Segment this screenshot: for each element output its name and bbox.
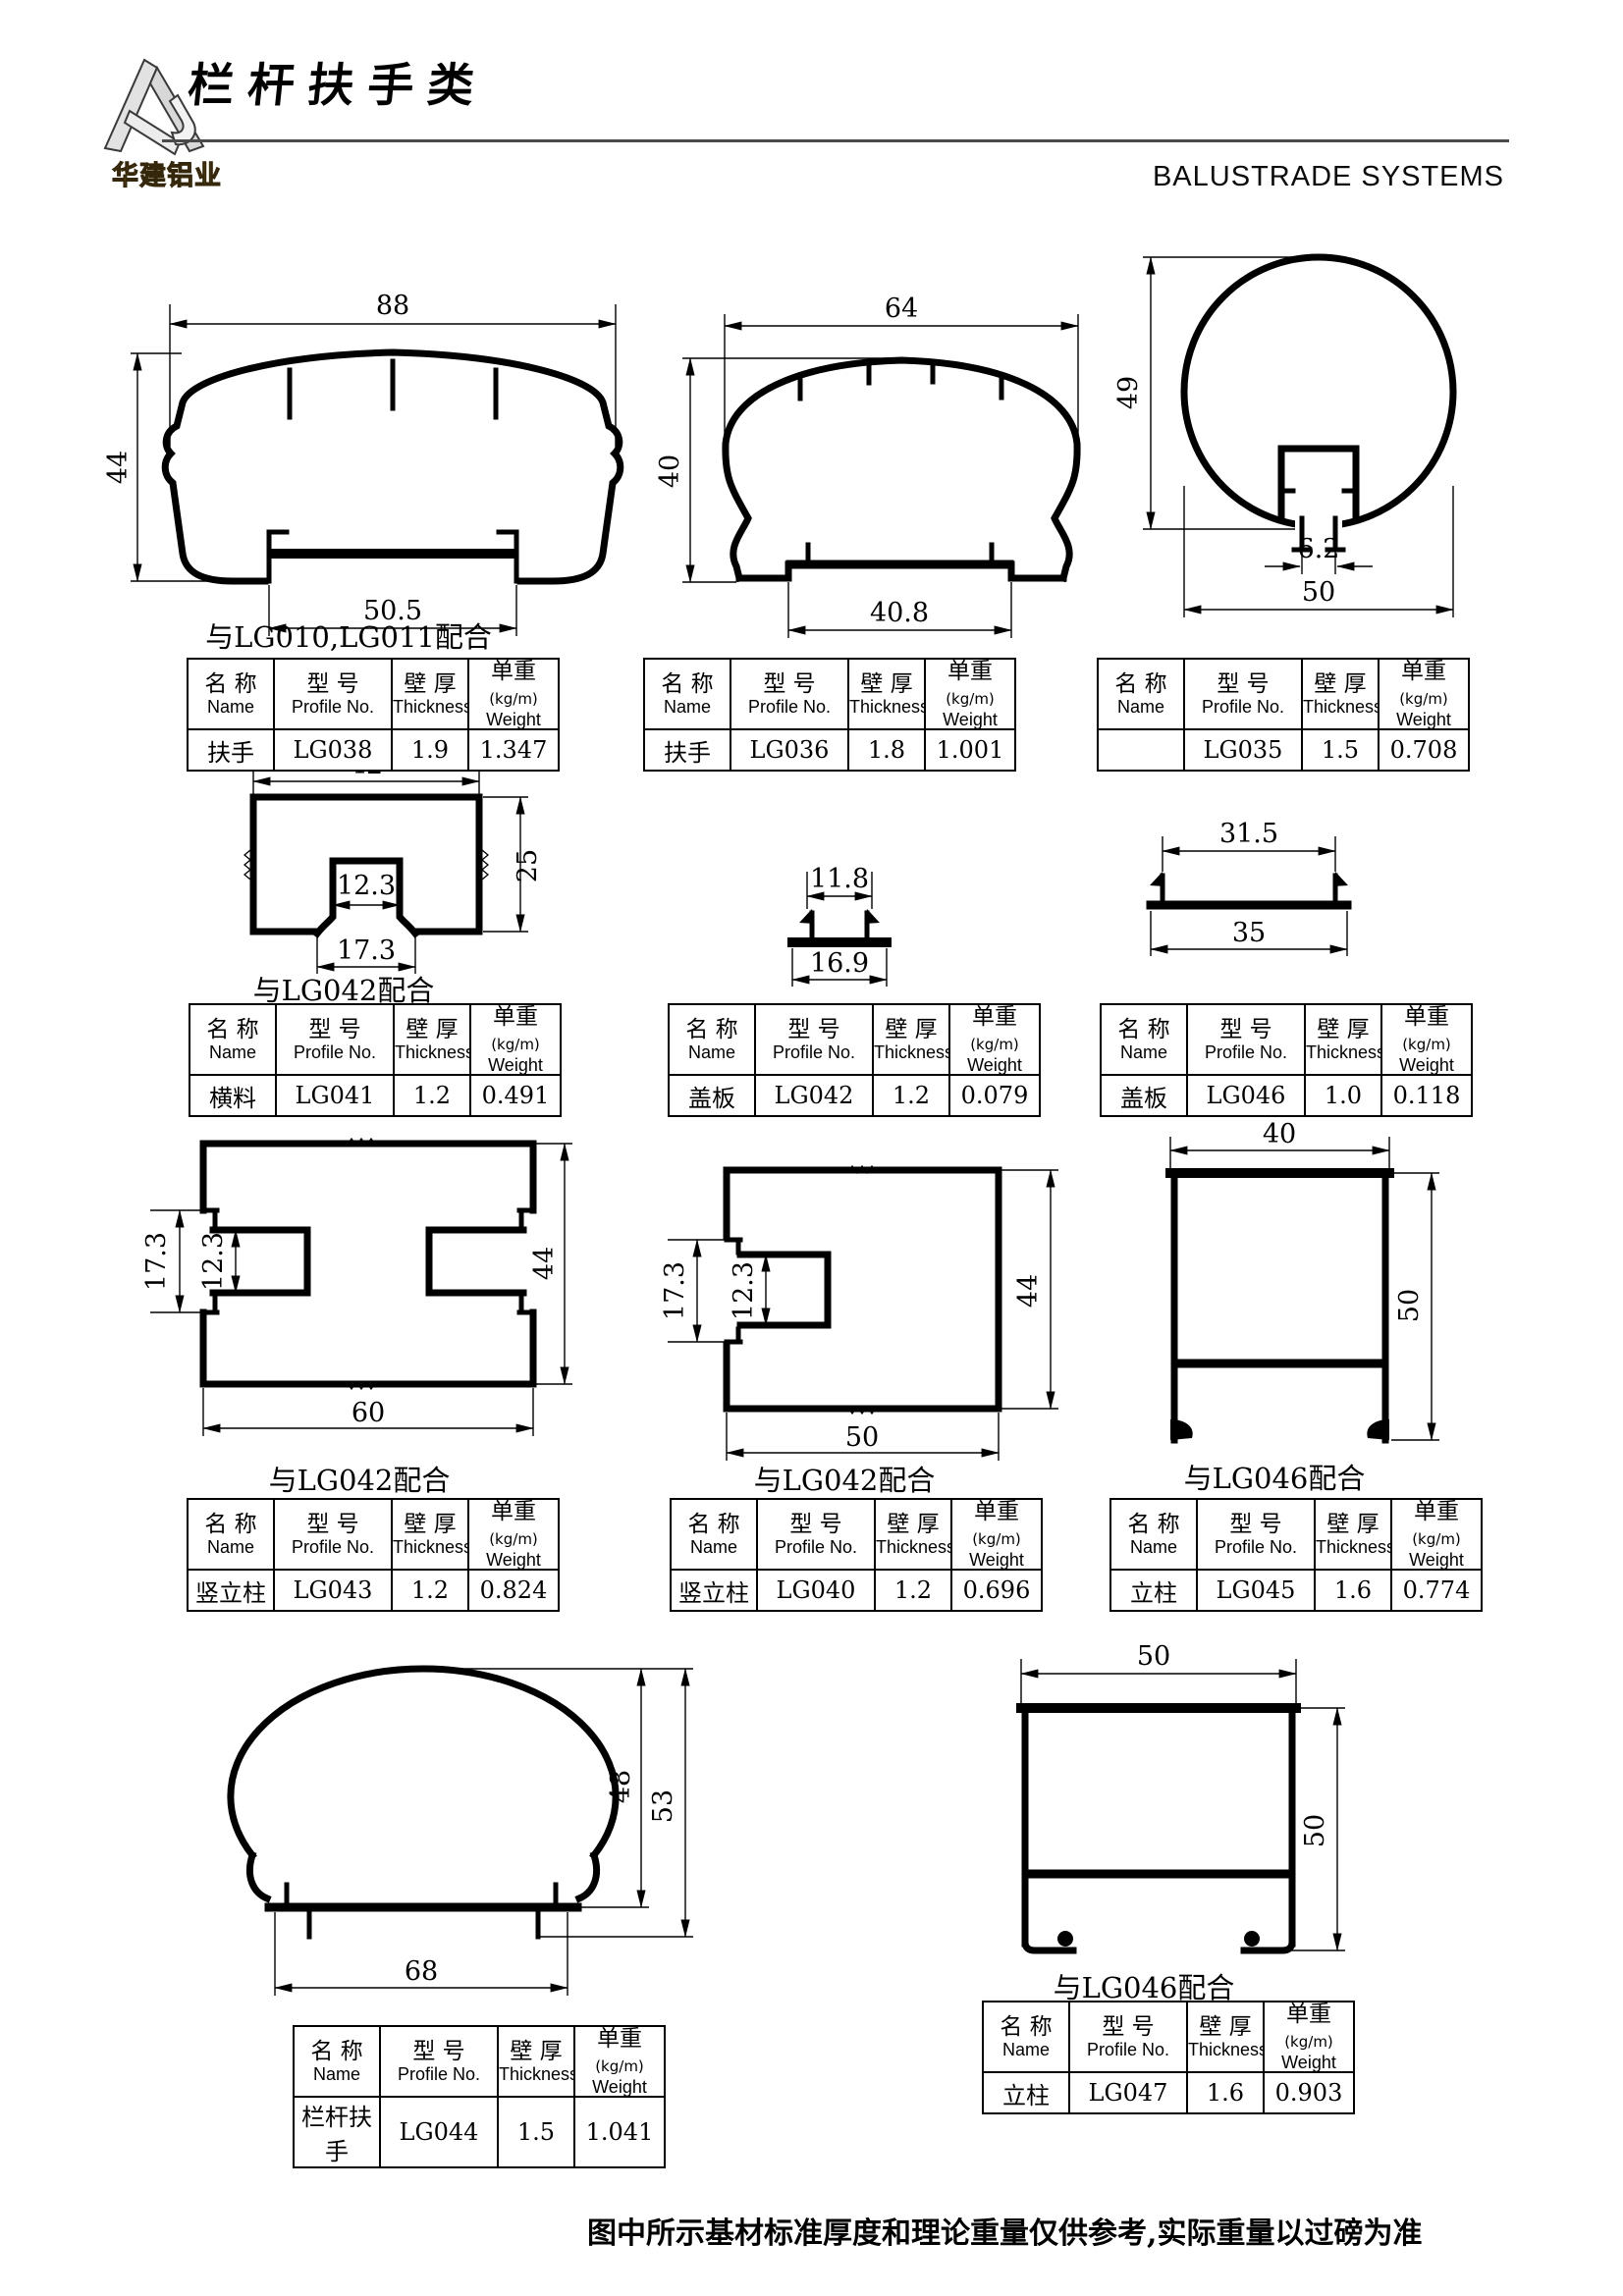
svg-text:53: 53 <box>648 1789 678 1823</box>
profile-drawing-lg046: 31.5 35 <box>1100 825 1473 977</box>
profile-drawing-lg047: 50 50 <box>972 1649 1394 1968</box>
spec-table-lg046: 名 称Name 型 号Profile No. 壁 厚Thickness 单重(k… <box>1100 1003 1473 1117</box>
svg-text:49: 49 <box>1113 376 1144 409</box>
th-name: 名 称Name <box>983 2002 1069 2072</box>
th-name: 名 称Name <box>644 659 730 729</box>
profile-drawing-lg040: 17.3 12.3 44 50 <box>638 1134 1129 1472</box>
cell-thickness: 1.5 <box>498 2097 574 2167</box>
th-weight: 单重(kg/m)Weight <box>470 1004 561 1075</box>
th-profile: 型 号Profile No. <box>1184 659 1302 729</box>
cell-thickness: 1.6 <box>1315 1570 1391 1611</box>
cell-weight: 0.824 <box>468 1570 559 1611</box>
cell-name: 扶手 <box>644 729 730 771</box>
caption-lg038: 与LG010,LG011配合 <box>201 614 496 656</box>
svg-text:44: 44 <box>529 1247 560 1280</box>
cell-weight: 0.774 <box>1391 1570 1482 1611</box>
th-thickness: 壁 厚Thickness <box>498 2026 574 2097</box>
dimension-bottom: 35 <box>1151 911 1347 956</box>
cell-profile-no: LG043 <box>274 1570 392 1611</box>
dimension-width: 50 <box>1021 1641 1296 1703</box>
dimension-inner: 12.3 <box>198 1230 236 1293</box>
cell-name: 竖立柱 <box>671 1570 757 1611</box>
caption-lg040: 与LG042配合 <box>746 1458 943 1499</box>
th-profile: 型 号Profile No. <box>755 1004 873 1075</box>
cell-thickness: 1.5 <box>1302 729 1379 771</box>
cell-thickness: 1.0 <box>1305 1075 1381 1116</box>
svg-text:16.9: 16.9 <box>810 948 869 979</box>
catalog-page: 华建铝业 栏杆扶手类 BALUSTRADE SYSTEMS 88 44 50. <box>0 0 1623 2296</box>
dimension-inner: 12.3 <box>333 871 400 905</box>
th-thickness: 壁 厚Thickness <box>848 659 925 729</box>
cell-name: 立柱 <box>1110 1570 1197 1611</box>
cell-profile-no: LG046 <box>1187 1075 1305 1116</box>
cell-weight: 0.708 <box>1379 729 1469 771</box>
th-thickness: 壁 厚Thickness <box>873 1004 949 1075</box>
cell-name: 横料 <box>189 1075 276 1116</box>
cell-profile-no: LG041 <box>276 1075 394 1116</box>
svg-text:11.8: 11.8 <box>810 864 869 894</box>
svg-text:31.5: 31.5 <box>1219 819 1278 849</box>
caption-lg043: 与LG042配合 <box>261 1458 458 1499</box>
th-name: 名 称Name <box>188 659 274 729</box>
th-profile: 型 号Profile No. <box>1187 1004 1305 1075</box>
cell-weight: 0.079 <box>949 1075 1040 1116</box>
th-weight: 单重(kg/m)Weight <box>1391 1499 1482 1570</box>
dimension-width: 64 <box>725 294 1078 454</box>
dimension-width: 68 <box>275 1912 568 1996</box>
th-profile: 型 号Profile No. <box>730 659 848 729</box>
profile-outline <box>1021 1708 1296 1950</box>
cell-thickness: 1.2 <box>394 1075 470 1116</box>
page-title: 栏杆扶手类 <box>185 47 491 115</box>
page-subtitle: BALUSTRADE SYSTEMS <box>1109 161 1504 193</box>
profile-outline <box>231 1669 616 1937</box>
svg-text:40.8: 40.8 <box>870 598 929 628</box>
svg-text:68: 68 <box>405 1956 438 1987</box>
profile-drawing-lg042: 11.8 16.9 <box>736 854 962 1001</box>
svg-text:40: 40 <box>1263 1119 1296 1149</box>
th-name: 名 称Name <box>1098 659 1184 729</box>
cell-weight: 0.118 <box>1381 1075 1472 1116</box>
cell-weight: 0.491 <box>470 1075 561 1116</box>
svg-text:12.3: 12.3 <box>198 1232 229 1291</box>
th-thickness: 壁 厚Thickness <box>392 659 468 729</box>
cell-profile-no: LG044 <box>380 2097 498 2167</box>
svg-text:50: 50 <box>1300 1814 1330 1847</box>
th-profile: 型 号Profile No. <box>380 2026 498 2097</box>
profile-outline <box>1170 1173 1389 1440</box>
svg-text:50: 50 <box>1394 1289 1425 1322</box>
th-thickness: 壁 厚Thickness <box>1302 659 1379 729</box>
spec-table-lg040: 名 称Name 型 号Profile No. 壁 厚Thickness 单重(k… <box>670 1498 1043 1612</box>
cell-thickness: 1.6 <box>1187 2072 1264 2113</box>
svg-text:60: 60 <box>352 1398 385 1428</box>
cell-profile-no: LG042 <box>755 1075 873 1116</box>
spec-table-lg036: 名 称Name 型 号Profile No. 壁 厚Thickness 单重(k… <box>643 658 1016 772</box>
profile-outline <box>727 1166 999 1414</box>
dimension-height: 44 <box>1001 1170 1058 1409</box>
caption-lg045: 与LG046配合 <box>1176 1456 1373 1497</box>
dimension-bottom: 40.8 <box>788 582 1011 638</box>
cell-name: 立柱 <box>983 2072 1069 2113</box>
th-weight: 单重(kg/m)Weight <box>574 2026 665 2097</box>
logo-text: 华建铝业 <box>112 160 222 191</box>
dimension-height: 40 <box>655 358 893 582</box>
svg-text:44: 44 <box>103 451 134 484</box>
profile-drawing-lg036: 64 40 40.8 <box>638 285 1100 653</box>
cell-profile-no: LG040 <box>757 1570 875 1611</box>
cell-profile-no: LG036 <box>730 729 848 771</box>
cell-profile-no: LG038 <box>274 729 392 771</box>
profile-drawing-lg041: 42 12.3 17.3 25 <box>167 756 579 987</box>
cell-name <box>1098 729 1184 771</box>
dimension-height: 50 <box>1391 1173 1439 1440</box>
th-weight: 单重(kg/m)Weight <box>951 1499 1042 1570</box>
th-weight-en: Weight <box>469 711 558 729</box>
cell-thickness: 1.9 <box>392 729 468 771</box>
th-name: 名 称Name <box>1110 1499 1197 1570</box>
th-thickness: 壁 厚Thickness <box>875 1499 951 1570</box>
profile-outline <box>1150 872 1348 905</box>
spec-table-lg044: 名 称Name 型 号Profile No. 壁 厚Thickness 单重(k… <box>293 2025 666 2168</box>
dimension-bottom: 16.9 <box>792 948 887 987</box>
svg-text:17.3: 17.3 <box>337 935 396 966</box>
dimension-top: 31.5 <box>1163 819 1335 872</box>
cell-profile-no: LG035 <box>1184 729 1302 771</box>
th-weight: 单重(kg/m)Weight <box>1379 659 1469 729</box>
svg-text:12.3: 12.3 <box>729 1261 759 1320</box>
dimension-slot: 6.2 <box>1265 526 1373 574</box>
dimension-inner: 12.3 <box>729 1255 766 1325</box>
cell-profile-no: LG045 <box>1197 1570 1315 1611</box>
cell-name: 盖板 <box>669 1075 755 1116</box>
profile-outline <box>244 797 488 934</box>
cell-thickness: 1.8 <box>848 729 925 771</box>
cell-name: 竖立柱 <box>188 1570 274 1611</box>
svg-text:44: 44 <box>1013 1274 1044 1308</box>
th-weight-cn: 单重(kg/m) <box>469 660 558 711</box>
cell-thickness: 1.2 <box>875 1570 951 1611</box>
cell-weight: 1.347 <box>468 729 559 771</box>
svg-text:88: 88 <box>376 291 409 321</box>
svg-text:17.3: 17.3 <box>141 1232 172 1291</box>
th-profile-cn: 型 号 <box>275 672 391 698</box>
spec-table-lg041: 名 称Name 型 号Profile No. 壁 厚Thickness 单重(k… <box>189 1003 562 1117</box>
cell-thickness: 1.2 <box>392 1570 468 1611</box>
cell-weight: 0.696 <box>951 1570 1042 1611</box>
th-weight: 单重(kg/m)Weight <box>949 1004 1040 1075</box>
th-profile: 型 号Profile No. <box>1197 1499 1315 1570</box>
dimension-outer: 17.3 <box>660 1240 725 1342</box>
th-name: 名 称Name <box>1101 1004 1187 1075</box>
spec-table-lg038: 名 称Name 型 号Profile No. 壁 厚Thickness 单重(k… <box>187 658 560 772</box>
cell-thickness: 1.2 <box>873 1075 949 1116</box>
dimension-width: 50 <box>727 1413 999 1461</box>
svg-text:12.3: 12.3 <box>337 871 396 901</box>
th-name: 名 称Name <box>669 1004 755 1075</box>
svg-text:17.3: 17.3 <box>660 1261 690 1320</box>
svg-text:25: 25 <box>513 849 543 882</box>
th-thickness: 壁 厚Thickness <box>394 1004 470 1075</box>
th-profile-en: Profile No. <box>275 698 391 717</box>
th-profile: 型 号Profile No. <box>274 659 392 729</box>
spec-table-lg035: 名 称Name 型 号Profile No. 壁 厚Thickness 单重(k… <box>1097 658 1470 772</box>
cell-name: 扶手 <box>188 729 274 771</box>
profile-drawing-lg038: 88 44 50.5 <box>93 236 692 658</box>
th-thickness: 壁 厚Thickness <box>1305 1004 1381 1075</box>
th-weight-unit: (kg/m) <box>489 690 538 708</box>
cell-name: 盖板 <box>1101 1075 1187 1116</box>
cell-weight: 1.041 <box>574 2097 665 2167</box>
th-name: 名 称Name <box>671 1499 757 1570</box>
cell-weight: 0.903 <box>1264 2072 1354 2113</box>
th-weight: 单重(kg/m)Weight <box>1264 2002 1354 2072</box>
svg-text:48: 48 <box>606 1770 636 1803</box>
spec-table-lg045: 名 称Name 型 号Profile No. 壁 厚Thickness 单重(k… <box>1109 1498 1483 1612</box>
profile-drawing-lg043: 17.3 12.3 44 60 <box>118 1134 609 1448</box>
profile-outline <box>203 1139 533 1389</box>
svg-text:64: 64 <box>885 294 918 324</box>
th-name: 名 称Name <box>294 2026 380 2097</box>
th-thickness: 壁 厚Thickness <box>1187 2002 1264 2072</box>
svg-text:50: 50 <box>1302 577 1335 608</box>
spec-table-lg042: 名 称Name 型 号Profile No. 壁 厚Thickness 单重(k… <box>668 1003 1041 1117</box>
th-profile: 型 号Profile No. <box>274 1499 392 1570</box>
th-weight: 单重(kg/m)Weight <box>468 659 559 729</box>
th-profile: 型 号Profile No. <box>757 1499 875 1570</box>
th-name: 名 称Name <box>189 1004 276 1075</box>
header-rule <box>162 139 1509 142</box>
th-weight: 单重(kg/m)Weight <box>925 659 1015 729</box>
svg-text:50: 50 <box>845 1422 879 1453</box>
svg-text:35: 35 <box>1232 918 1266 948</box>
th-weight: 单重(kg/m)Weight <box>1381 1004 1472 1075</box>
th-name: 名 称Name <box>188 1499 274 1570</box>
th-name-en: Name <box>189 698 273 717</box>
profile-outline <box>726 360 1077 578</box>
spec-table-lg043: 名 称Name 型 号Profile No. 壁 厚Thickness 单重(k… <box>187 1498 560 1612</box>
th-thickness: 壁 厚Thickness <box>1315 1499 1391 1570</box>
th-profile: 型 号Profile No. <box>1069 2002 1187 2072</box>
spec-table-lg047: 名 称Name 型 号Profile No. 壁 厚Thickness 单重(k… <box>982 2001 1355 2114</box>
dimension-height: 49 <box>1113 257 1319 529</box>
th-name-cn: 名 称 <box>189 672 273 698</box>
th-weight-label: 单重 <box>491 659 536 684</box>
profile-drawing-lg045: 40 50 <box>1119 1129 1512 1468</box>
th-weight: 单重(kg/m)Weight <box>468 1499 559 1570</box>
th-profile: 型 号Profile No. <box>276 1004 394 1075</box>
footer-note: 图中所示基材标准厚度和理论重量仅供参考,实际重量以过磅为准 <box>587 2209 1422 2252</box>
profile-drawing-lg035: 49 6.2 50 <box>1080 236 1551 628</box>
profile-outline <box>1184 257 1453 550</box>
cell-name: 栏杆扶手 <box>294 2097 380 2167</box>
svg-text:50: 50 <box>1137 1641 1170 1672</box>
dimension-top: 11.8 <box>807 864 872 909</box>
th-thickness-cn: 壁 厚 <box>393 672 467 698</box>
dimension-outer: 17.3 <box>141 1210 201 1312</box>
cell-profile-no: LG047 <box>1069 2072 1187 2113</box>
svg-text:40: 40 <box>655 454 685 488</box>
dimension-width: 40 <box>1170 1119 1389 1168</box>
profile-drawing-lg044: 48 53 68 <box>216 1649 766 2012</box>
th-thickness: 壁 厚Thickness <box>392 1499 468 1570</box>
cell-weight: 1.001 <box>925 729 1015 771</box>
profile-outline <box>792 909 887 942</box>
dimension-width: 60 <box>203 1388 533 1436</box>
profile-outline <box>165 352 621 581</box>
dimension-height: 25 <box>483 797 543 932</box>
th-thickness-en: Thickness <box>393 698 467 717</box>
svg-text:6.2: 6.2 <box>1298 534 1340 564</box>
